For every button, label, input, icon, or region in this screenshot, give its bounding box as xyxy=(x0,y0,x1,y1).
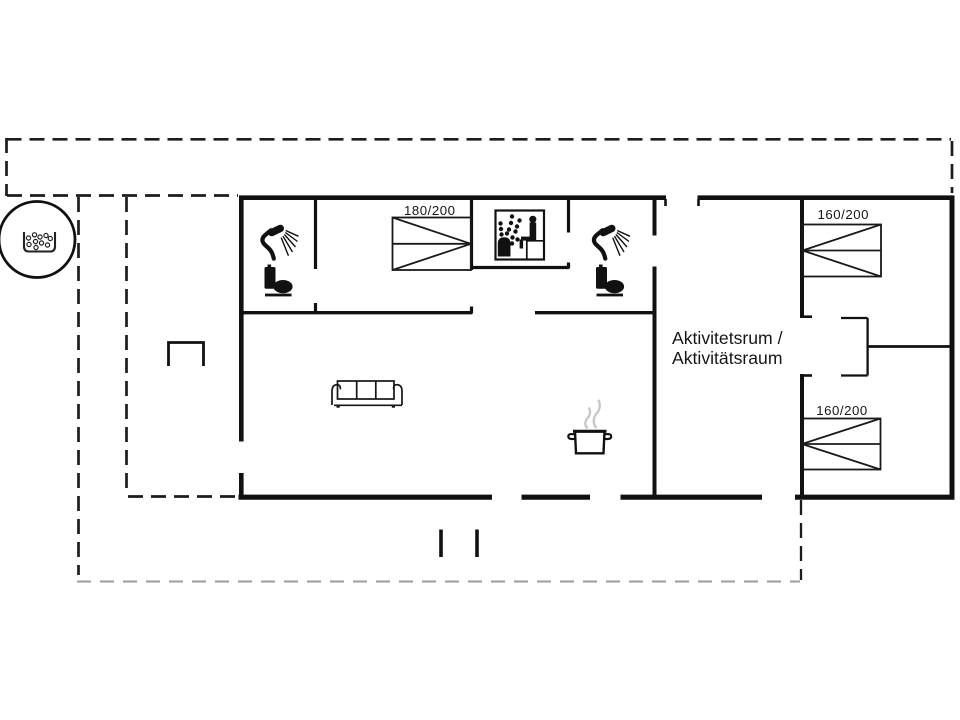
svg-text:160/200: 160/200 xyxy=(816,403,868,418)
svg-text:Aktivitätsraum: Aktivitätsraum xyxy=(672,348,782,368)
svg-text:180/200: 180/200 xyxy=(404,203,456,218)
svg-text:Aktivitetsrum /: Aktivitetsrum / xyxy=(672,328,783,348)
svg-text:160/200: 160/200 xyxy=(818,207,870,222)
